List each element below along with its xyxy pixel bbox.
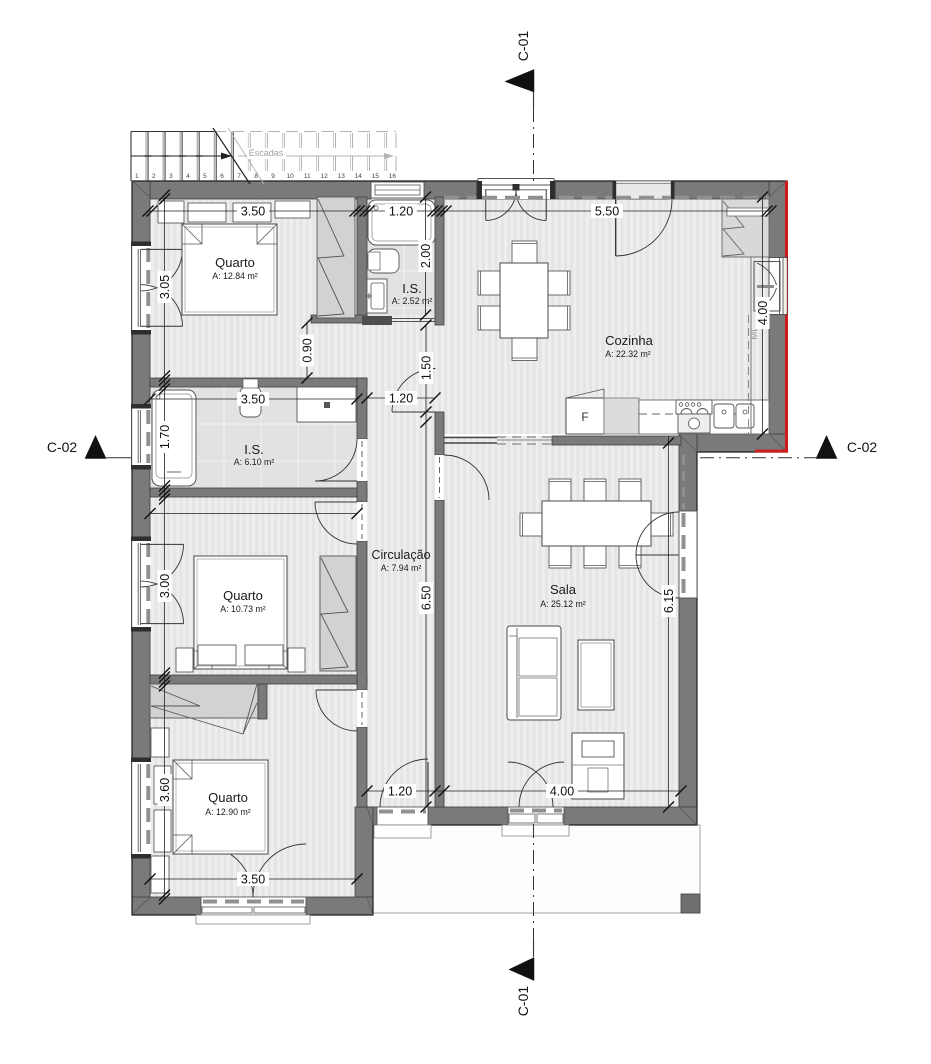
svg-text:1.50: 1.50 <box>420 356 434 380</box>
svg-text:1.20: 1.20 <box>389 392 413 406</box>
svg-text:A: 2.52 m²: A: 2.52 m² <box>392 296 433 306</box>
svg-text:A: 7.94 m²: A: 7.94 m² <box>381 563 422 573</box>
svg-text:8: 8 <box>254 173 258 180</box>
svg-text:3.00: 3.00 <box>158 574 172 598</box>
svg-text:1: 1 <box>135 173 139 180</box>
svg-text:A: 25.12 m²: A: 25.12 m² <box>540 599 586 609</box>
svg-text:I.S.: I.S. <box>244 442 264 457</box>
svg-text:I.S.: I.S. <box>402 281 422 296</box>
svg-text:3: 3 <box>169 173 173 180</box>
svg-text:C-02: C-02 <box>47 439 78 455</box>
svg-text:4.00: 4.00 <box>550 785 574 799</box>
svg-text:5.50: 5.50 <box>595 205 619 219</box>
svg-text:F: F <box>581 410 588 424</box>
svg-text:16: 16 <box>389 173 397 180</box>
svg-text:A: 10.73 m²: A: 10.73 m² <box>220 604 266 614</box>
svg-text:15: 15 <box>372 173 380 180</box>
svg-text:A: 12.90 m²: A: 12.90 m² <box>205 807 251 817</box>
svg-text:6.50: 6.50 <box>420 586 434 610</box>
svg-text:Quarto: Quarto <box>208 790 248 805</box>
svg-text:1.20: 1.20 <box>388 785 412 799</box>
svg-text:11: 11 <box>304 173 311 180</box>
svg-text:A: 12.84 m²: A: 12.84 m² <box>212 271 258 281</box>
svg-text:Sala: Sala <box>550 582 577 597</box>
svg-text:3.50: 3.50 <box>241 205 265 219</box>
svg-text:Escadas: Escadas <box>249 148 284 158</box>
svg-text:0.90: 0.90 <box>301 338 315 362</box>
svg-text:6.15: 6.15 <box>662 589 676 613</box>
svg-text:3.50: 3.50 <box>241 873 265 887</box>
svg-text:10: 10 <box>287 173 295 180</box>
svg-text:12: 12 <box>321 173 329 180</box>
svg-text:C-02: C-02 <box>847 439 878 455</box>
svg-text:Quarto: Quarto <box>223 588 263 603</box>
svg-text:1.70: 1.70 <box>158 425 172 449</box>
svg-text:2.00: 2.00 <box>419 244 433 268</box>
svg-text:Cozinha: Cozinha <box>605 333 653 348</box>
svg-text:2: 2 <box>152 173 156 180</box>
svg-text:5: 5 <box>203 173 207 180</box>
svg-text:14: 14 <box>355 173 363 180</box>
svg-text:Quarto: Quarto <box>215 255 255 270</box>
svg-text:A: 6.10 m²: A: 6.10 m² <box>234 457 275 467</box>
svg-text:4: 4 <box>186 173 190 180</box>
svg-text:6: 6 <box>220 173 224 180</box>
svg-text:3.50: 3.50 <box>241 393 265 407</box>
svg-text:4.00: 4.00 <box>756 301 770 325</box>
svg-text:C-01: C-01 <box>515 31 531 62</box>
svg-text:9: 9 <box>271 173 275 180</box>
svg-text:7: 7 <box>237 173 241 180</box>
svg-text:3.60: 3.60 <box>158 778 172 802</box>
svg-text:A: 22.32 m²: A: 22.32 m² <box>605 349 651 359</box>
svg-text:C-01: C-01 <box>515 986 531 1017</box>
svg-text:1.20: 1.20 <box>389 205 413 219</box>
svg-text:3.05: 3.05 <box>158 275 172 299</box>
svg-text:13: 13 <box>338 173 346 180</box>
svg-text:Circulação: Circulação <box>371 548 430 562</box>
